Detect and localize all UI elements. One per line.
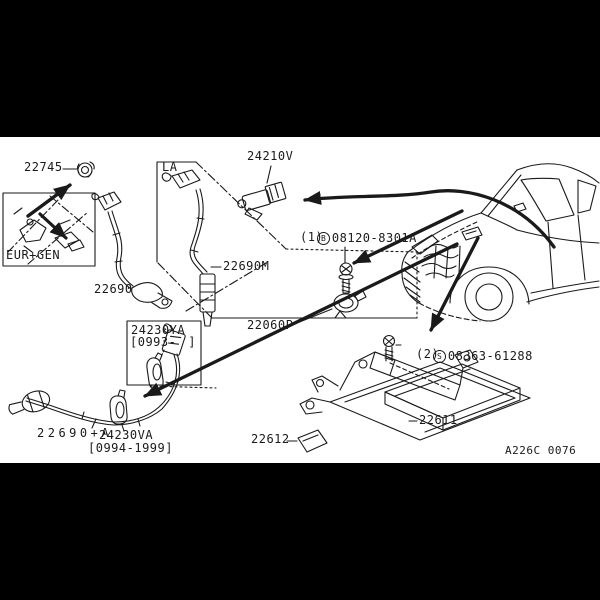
- arrow-to-grommet: [28, 185, 70, 216]
- label-rear-clip-range: [0994-1999]: [88, 442, 173, 455]
- label-eur-gen: EUR+GEN: [6, 249, 60, 262]
- label-grommet: 22745: [24, 161, 63, 174]
- parts-diagram-page: 22745 EUR+GEN 22690 LA 24210V B08120-830…: [0, 0, 600, 600]
- ecu-clip-part: [287, 430, 327, 452]
- car-outline: [402, 164, 599, 321]
- drawing-code: A226C 0076: [505, 444, 576, 457]
- label-ecu-bracket: 22611: [419, 414, 458, 427]
- label-sub-harness: 24210V: [247, 150, 293, 163]
- label-la: LA: [162, 161, 177, 174]
- label-front-sensor: 22690: [94, 283, 133, 296]
- label-ya-box-range: [0993- ]: [130, 336, 196, 349]
- diagram-line-art: [0, 0, 600, 600]
- sub-harness-part: [235, 166, 286, 220]
- label-bolt-qty: (1): [300, 231, 323, 244]
- label-clamp: 22060P: [247, 319, 293, 332]
- grommet-part: [63, 162, 94, 177]
- label-la-sensor: 22690M: [223, 260, 269, 273]
- label-screw-qty: (2): [416, 348, 439, 361]
- label-ecu-clip: 22612: [251, 433, 290, 446]
